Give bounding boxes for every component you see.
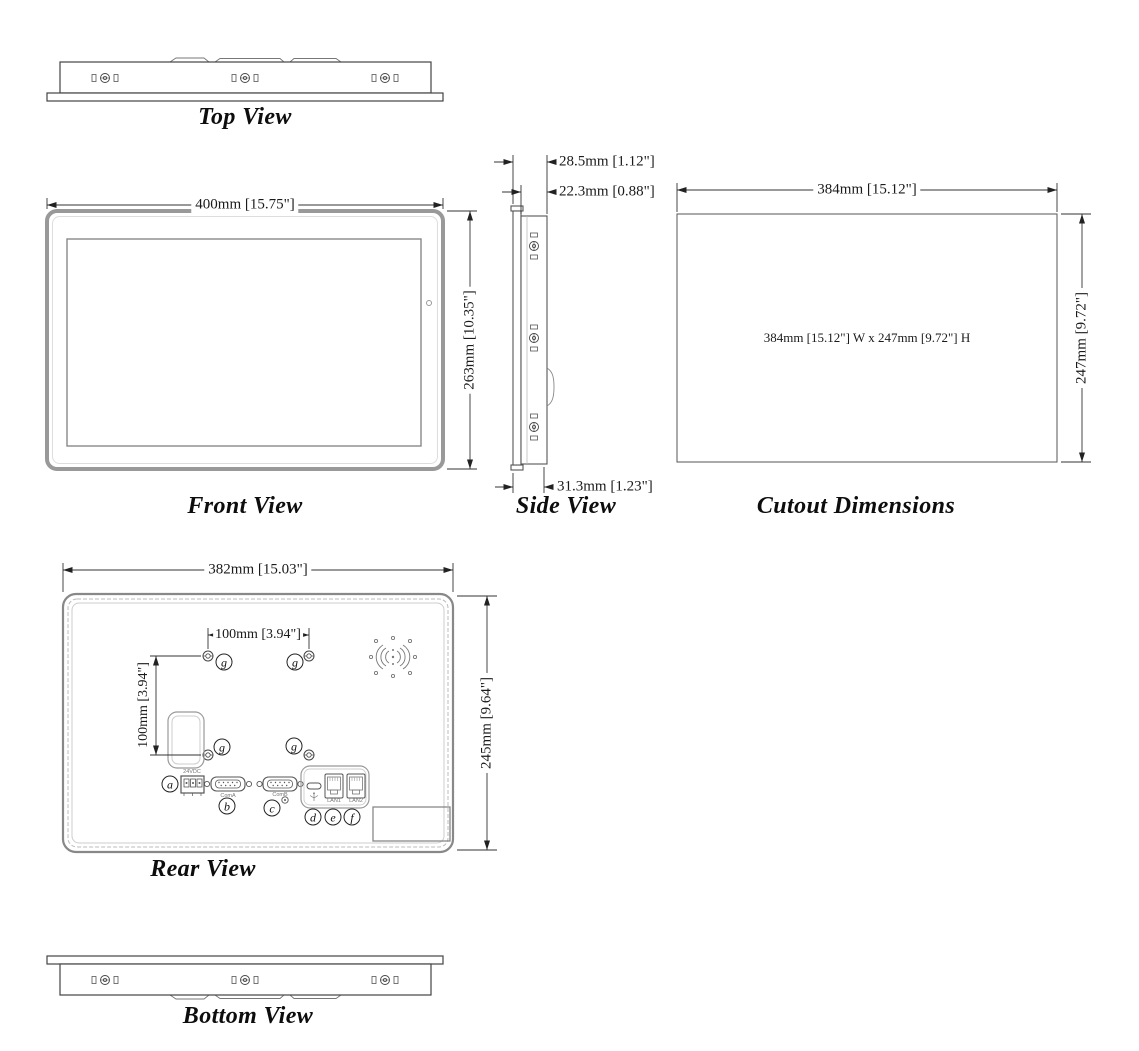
callout-a: a [162, 776, 179, 793]
top-view-drawing [47, 58, 443, 101]
lan2-port [347, 774, 365, 798]
front-view-drawing [47, 211, 443, 469]
callout-c: c [264, 800, 281, 817]
side-view-label: Side View [516, 493, 616, 520]
front-view-label: Front View [187, 493, 302, 520]
callout-e: e [325, 809, 342, 826]
bottom-view-drawing [47, 956, 443, 999]
dimensional-drawing-page: Top View 400mm [15.75"] 263mm [10.35"] F… [0, 0, 1139, 1051]
front-height-dimension: 263mm [10.35"] [462, 286, 479, 393]
rear-width-dimension: 382mm [15.03"] [204, 562, 311, 579]
cutout-size-note: 384mm [15.12"] W x 247mm [9.72"] H [764, 330, 971, 346]
lan2-label: LAN2 [349, 798, 363, 804]
rating-label-plate [373, 807, 450, 841]
power-port-label: 24VDC [183, 769, 201, 775]
power-terminal-port [181, 776, 204, 796]
vesa-vertical-dimension: 100mm [3.94"] [136, 660, 152, 750]
callout-b: b [219, 798, 236, 815]
top-view-label: Top View [198, 104, 292, 131]
callout-g-bottom-right: g [286, 738, 303, 755]
cutout-height-dimension: 247mm [9.72"] [1074, 288, 1091, 388]
cutout-width-dimension: 384mm [15.12"] [813, 182, 920, 199]
com-a-label: ComA [220, 793, 235, 799]
bottom-view-label: Bottom View [183, 1003, 313, 1030]
cutout-view-label: Cutout Dimensions [757, 493, 955, 520]
rear-view-label: Rear View [150, 856, 256, 883]
front-width-dimension: 400mm [15.75"] [191, 197, 298, 214]
side-total-depth-dimension: 28.5mm [1.12"] [557, 154, 657, 171]
rear-height-dimension: 245mm [9.64"] [479, 673, 496, 773]
rear-cover-plate [168, 712, 204, 768]
side-body-depth-dimension: 22.3mm [0.88"] [557, 184, 657, 201]
lan1-label: LAN1 [327, 798, 341, 804]
side-view-drawing [511, 206, 554, 470]
usb-icon [310, 792, 318, 801]
speaker-grille-icon [369, 636, 416, 677]
callout-g-top-left: g [216, 654, 233, 671]
front-sensor-dot [427, 301, 432, 306]
vesa-horizontal-dimension: 100mm [3.94"] [213, 627, 303, 643]
callout-d: d [305, 809, 322, 826]
callout-g-bottom-left: g [214, 739, 231, 756]
callout-f: f [344, 809, 361, 826]
usb-port [307, 783, 321, 789]
lan1-port [325, 774, 343, 798]
com-b-port [257, 777, 303, 803]
com-a-port [204, 777, 251, 791]
com-b-label: ComB [272, 792, 287, 798]
callout-g-top-right: g [287, 654, 304, 671]
